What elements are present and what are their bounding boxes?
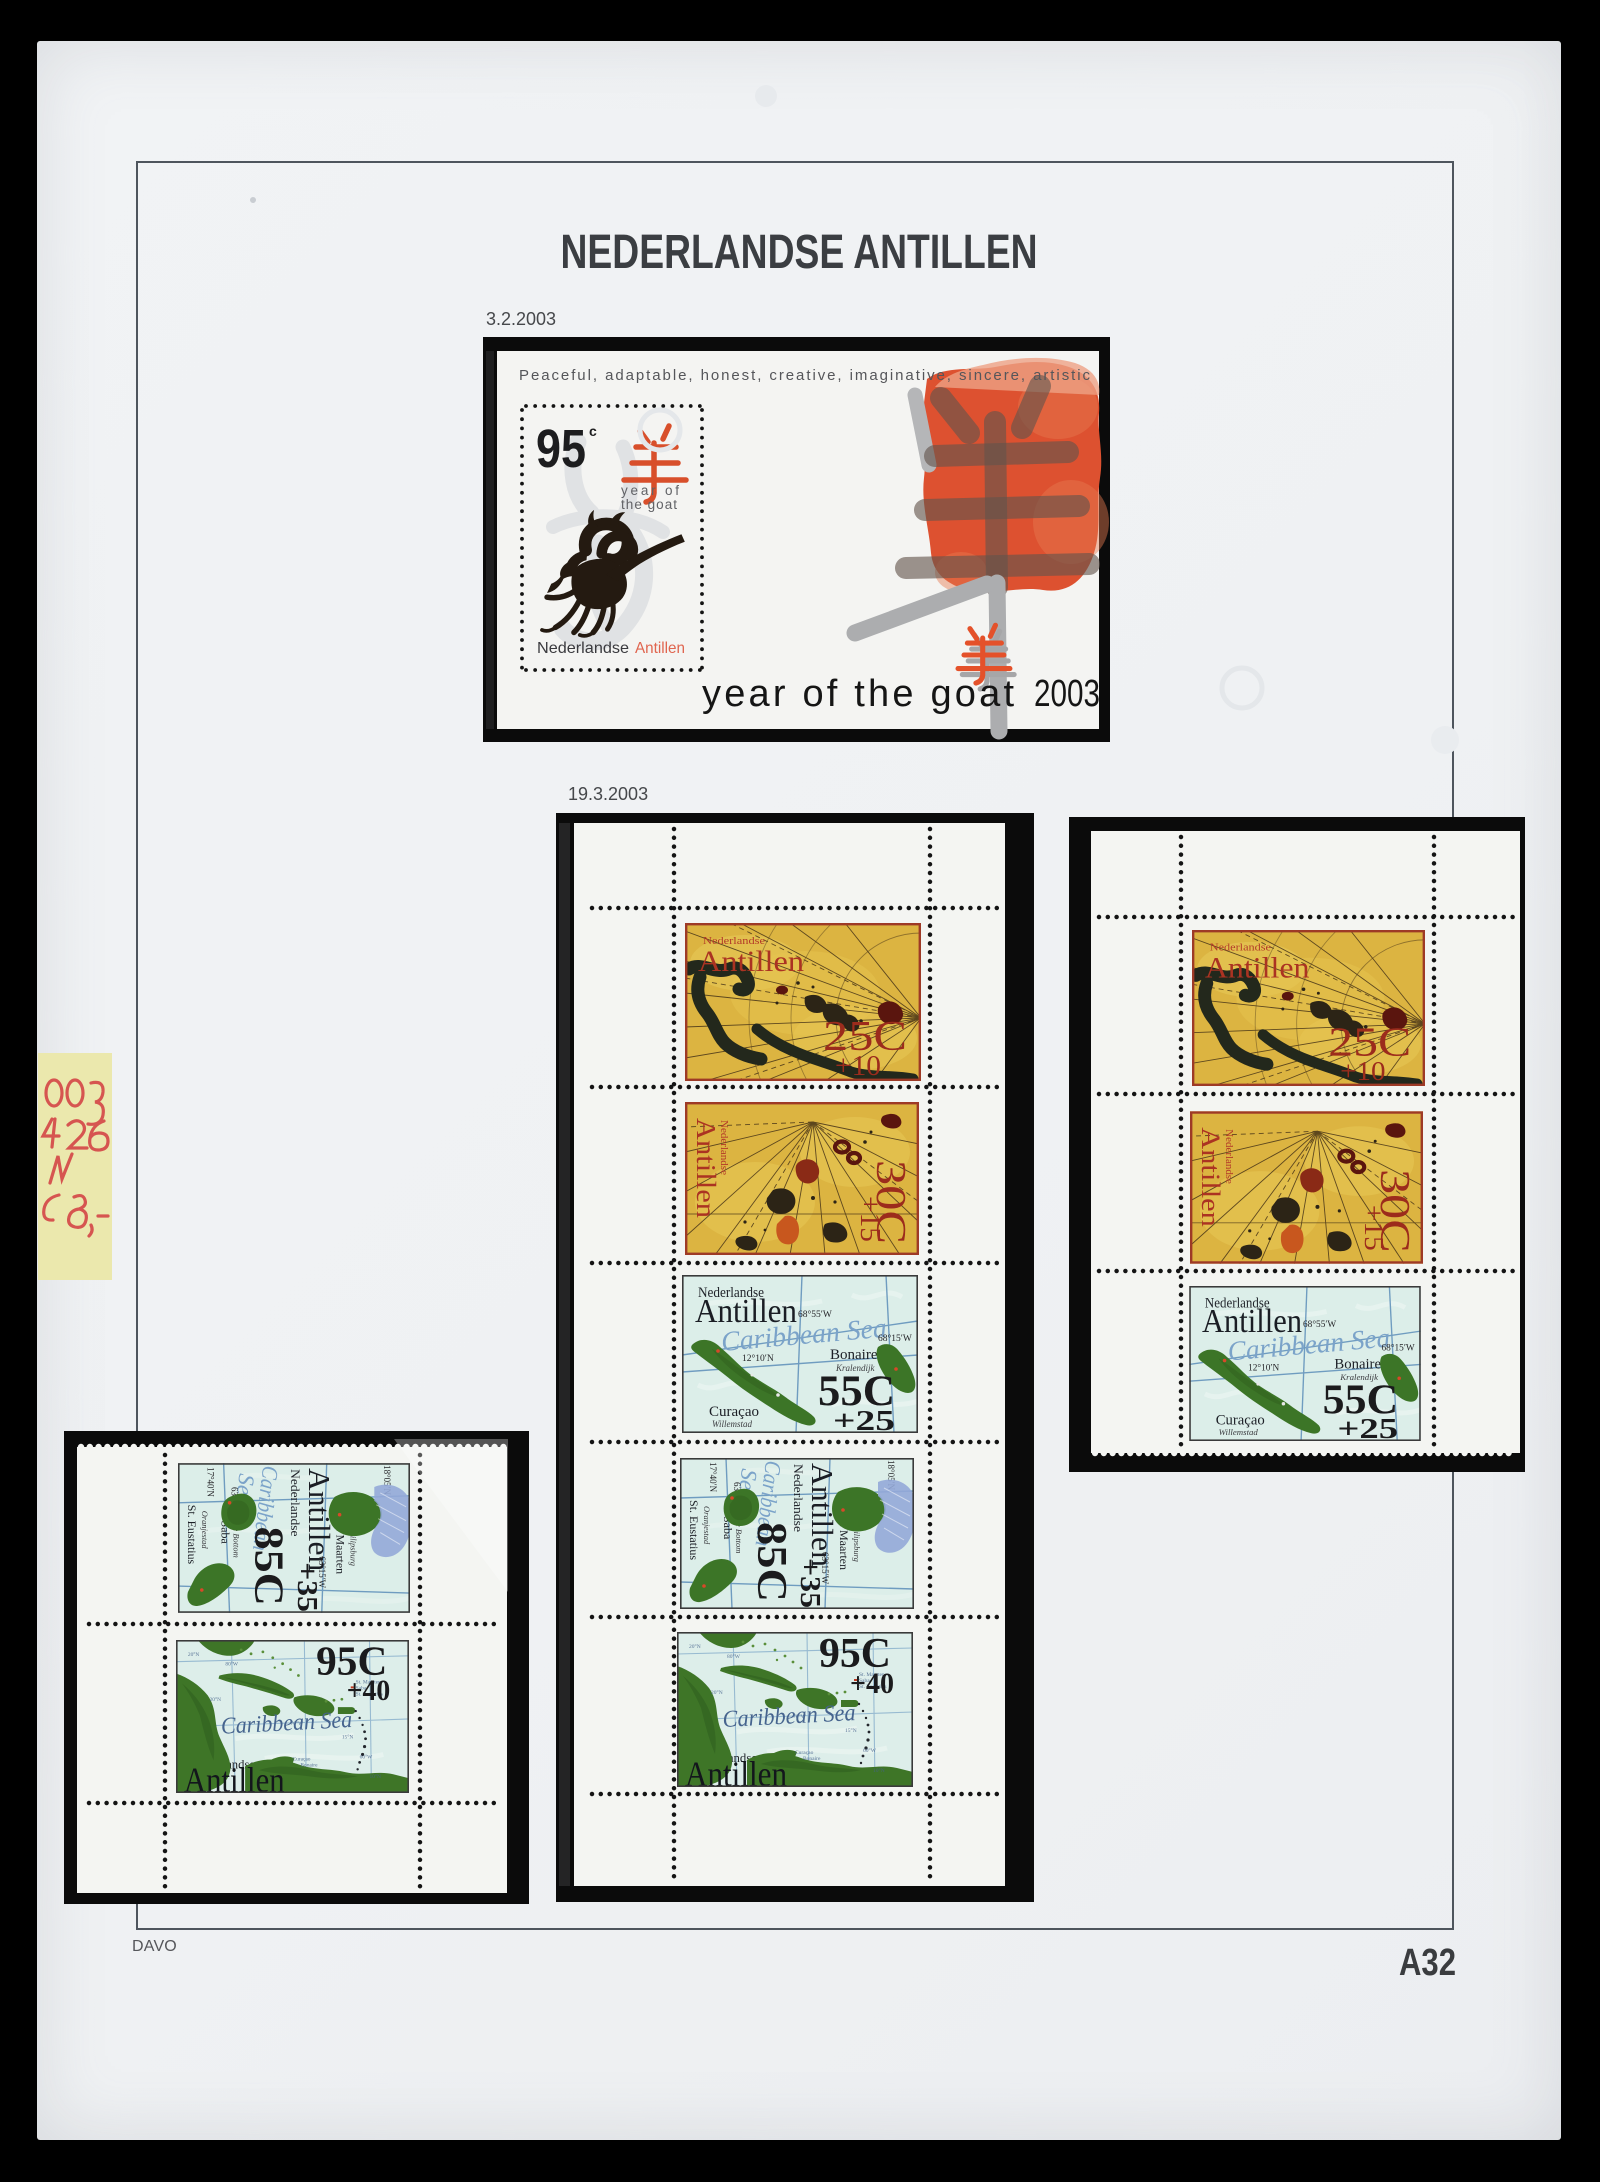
- svg-text:A32: A32: [1399, 1942, 1456, 1984]
